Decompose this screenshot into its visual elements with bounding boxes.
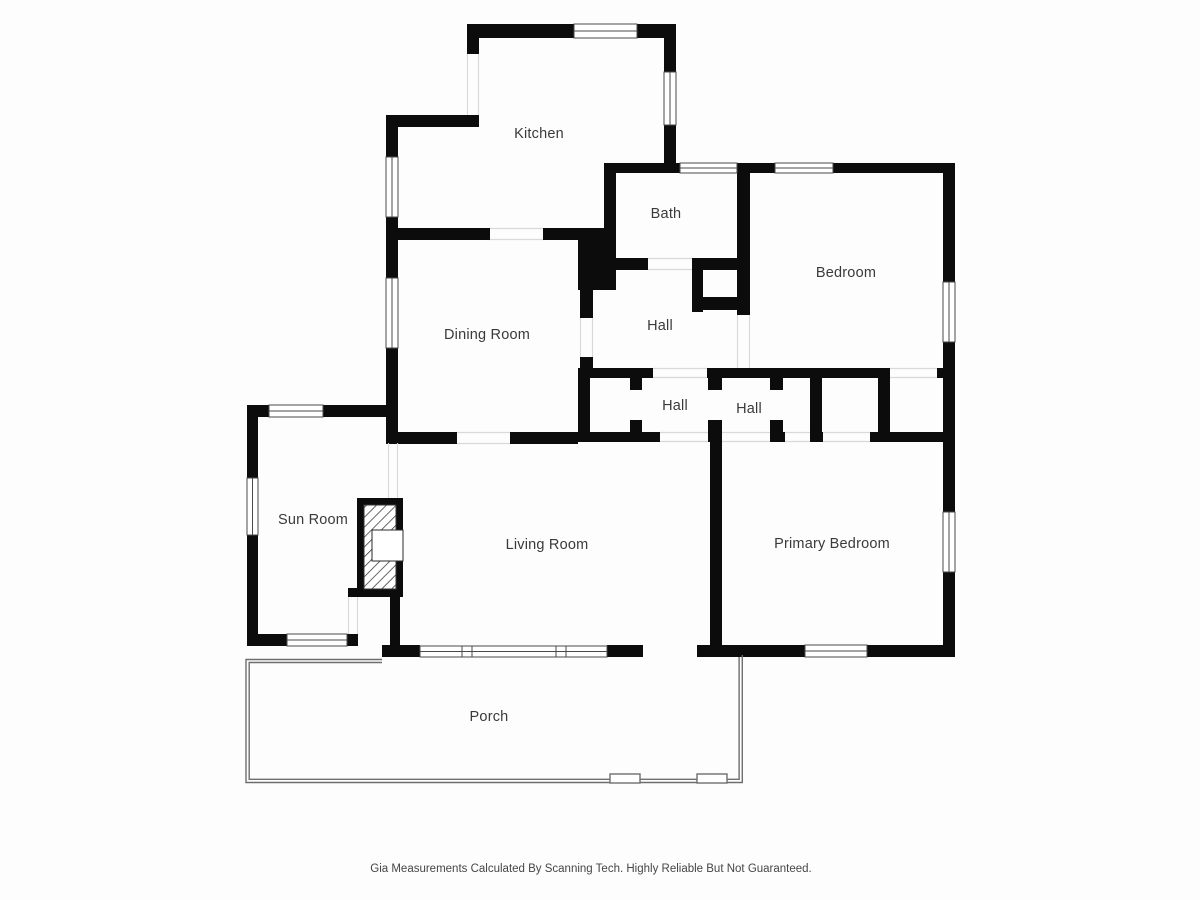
window xyxy=(386,157,398,217)
window xyxy=(775,163,833,173)
floorplan-page: Kitchen Bath Bedroom Dining Room Hall Ha… xyxy=(0,0,1200,900)
room-label-hall-west: Hall xyxy=(662,398,688,414)
window xyxy=(943,512,955,572)
porch-step xyxy=(610,774,640,783)
measurement-disclaimer: Gia Measurements Calculated By Scanning … xyxy=(370,863,812,875)
window xyxy=(680,163,737,173)
room-label-hall-upper: Hall xyxy=(647,318,673,334)
walls-layer xyxy=(247,24,955,657)
room-label-porch: Porch xyxy=(470,709,509,725)
window xyxy=(664,72,676,125)
room-label-bedroom: Bedroom xyxy=(816,265,876,281)
room-label-dining-room: Dining Room xyxy=(444,327,530,343)
window xyxy=(247,478,258,535)
window xyxy=(805,645,867,657)
room-label-bath: Bath xyxy=(651,206,682,222)
room-label-kitchen: Kitchen xyxy=(514,126,564,142)
room-label-sun-room: Sun Room xyxy=(278,512,348,528)
window xyxy=(269,405,323,417)
room-label-living-room: Living Room xyxy=(506,537,589,553)
windows-layer xyxy=(247,24,955,657)
window xyxy=(574,24,637,38)
window xyxy=(420,646,607,657)
window xyxy=(943,282,955,342)
window xyxy=(287,634,347,646)
room-label-hall-center: Hall xyxy=(736,401,762,417)
floorplan-drawing xyxy=(0,0,1200,900)
room-label-primary-bedroom: Primary Bedroom xyxy=(774,536,890,552)
window xyxy=(386,278,398,348)
porch-step xyxy=(697,774,727,783)
